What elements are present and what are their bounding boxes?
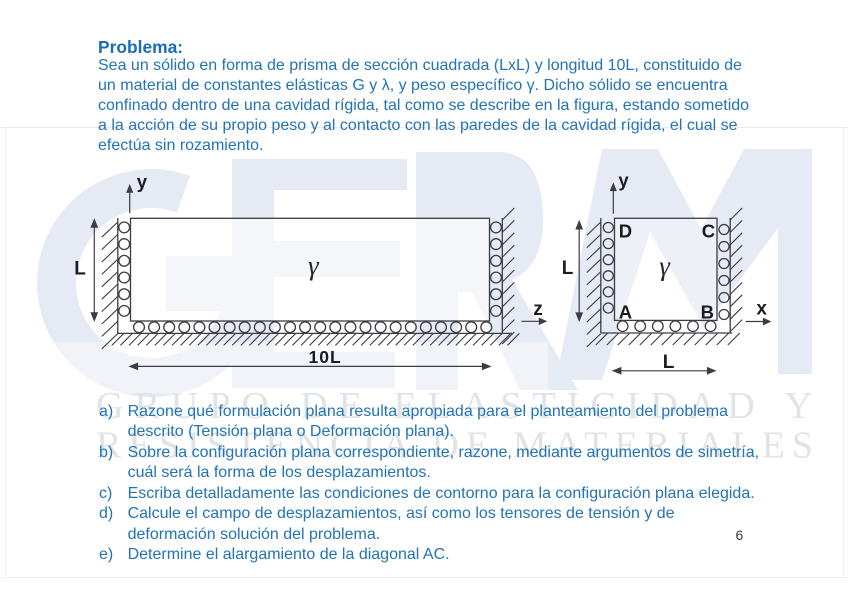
svg-text:x: x	[756, 299, 767, 320]
svg-text:L: L	[74, 259, 86, 280]
svg-text:B: B	[701, 302, 714, 323]
svg-text:D: D	[619, 221, 632, 242]
svg-text:C: C	[702, 221, 715, 242]
svg-text:γ: γ	[308, 251, 320, 281]
svg-text:L: L	[562, 258, 574, 279]
svg-text:γ: γ	[659, 251, 671, 281]
svg-text:y: y	[137, 171, 148, 192]
svg-text:L: L	[663, 352, 675, 373]
svg-text:y: y	[618, 170, 629, 191]
svg-text:A: A	[619, 301, 632, 322]
svg-text:10L: 10L	[309, 347, 342, 367]
svg-text:z: z	[533, 299, 543, 320]
